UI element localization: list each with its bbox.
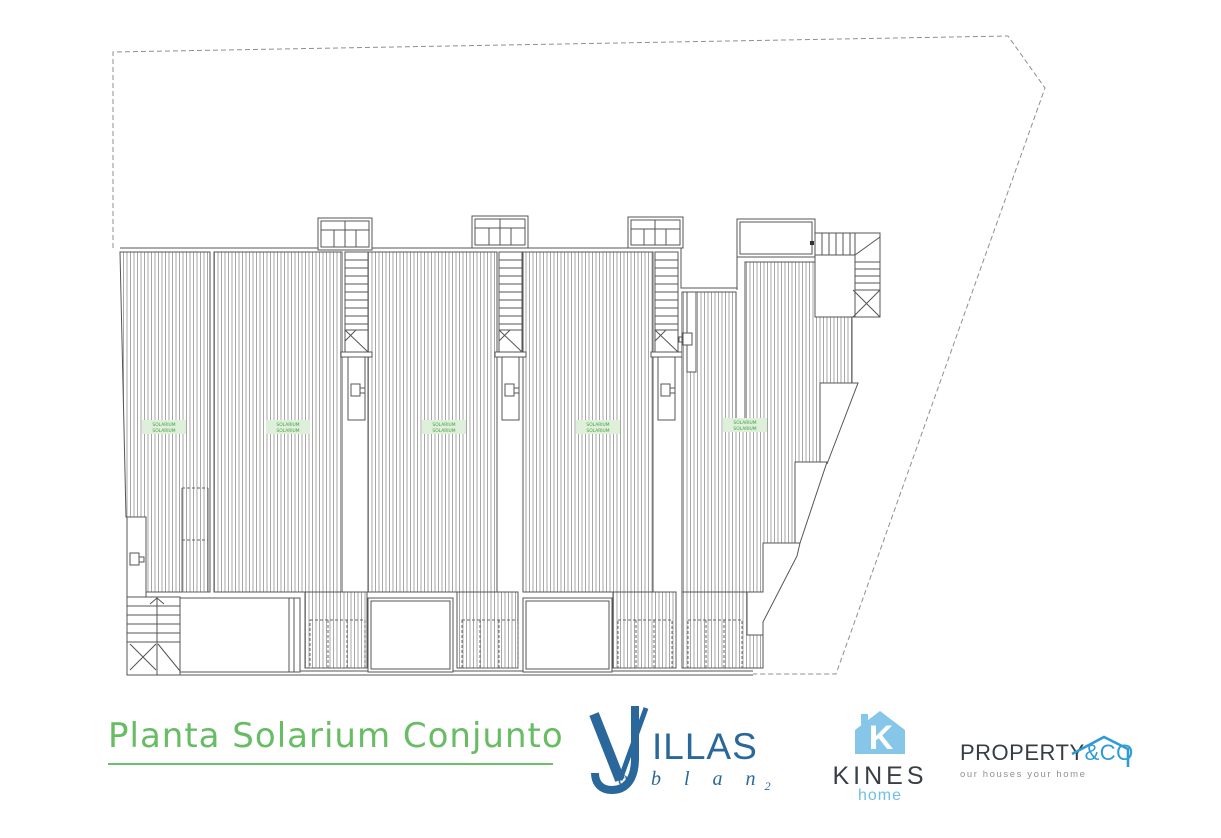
joblan-subscript: 2	[765, 779, 771, 793]
solarium-label-2: SOLARIUMSOLARIUM	[266, 420, 310, 434]
patio-3	[523, 598, 612, 672]
roof-icon	[1070, 726, 1136, 768]
property-co-tagline: our houses your home	[960, 769, 1145, 780]
door-icon	[683, 333, 692, 345]
svg-text:SOLARIUM: SOLARIUM	[276, 428, 299, 434]
floor-plan-drawing: SOLARIUMSOLARIUM SOLARIUMSOLARIUM SOLARI…	[0, 0, 1221, 705]
bulkhead-3	[628, 217, 683, 248]
svg-text:SOLARIUM: SOLARIUM	[276, 422, 299, 428]
stair-run-3	[651, 252, 682, 420]
solarium-label-1: SOLARIUMSOLARIUM	[142, 420, 186, 434]
unit-1-stair	[127, 597, 180, 675]
svg-text:SOLARIUM: SOLARIUM	[733, 426, 756, 432]
stair-run-2	[495, 252, 526, 420]
svg-text:SOLARIUM: SOLARIUM	[432, 428, 455, 434]
title-underline	[108, 763, 553, 765]
svg-text:SOLARIUM: SOLARIUM	[432, 422, 455, 428]
joblan-subname: o b l a n2	[618, 768, 771, 794]
drawing-sheet: SOLARIUMSOLARIUM SOLARIUMSOLARIUM SOLARI…	[0, 0, 1221, 838]
bulkhead-1	[318, 218, 372, 250]
bulkhead-2	[472, 216, 528, 248]
page-title: Planta Solarium Conjunto	[108, 716, 564, 756]
door-icon	[505, 384, 514, 396]
patios	[157, 598, 612, 672]
svg-text:SOLARIUM: SOLARIUM	[586, 422, 609, 428]
property-co-logo: PROPERTY&CO our houses your home	[960, 740, 1145, 780]
kines-house-icon: K	[849, 708, 911, 756]
unit-5-shaft	[687, 292, 696, 372]
left-access-strip	[127, 517, 146, 597]
joblan-name: ILLAS	[652, 726, 758, 768]
svg-text:SOLARIUM: SOLARIUM	[586, 428, 609, 434]
villas-joblan-logo: ILLAS o b l a n2	[588, 698, 763, 803]
l-stair	[815, 233, 880, 317]
stair-bulkheads	[318, 216, 683, 250]
stair-run-1	[341, 252, 372, 420]
solarium-label-3: SOLARIUMSOLARIUM	[422, 420, 466, 434]
solarium-label-4: SOLARIUMSOLARIUM	[576, 420, 620, 434]
door-icon	[130, 553, 139, 565]
svg-text:K: K	[869, 719, 894, 756]
patio-2	[368, 598, 453, 672]
terrace	[737, 219, 815, 257]
svg-text:SOLARIUM: SOLARIUM	[152, 428, 175, 434]
svg-text:SOLARIUM: SOLARIUM	[733, 420, 756, 426]
property-co-name: PROPERTY	[960, 740, 1085, 765]
door-icon	[661, 384, 670, 396]
solarium-label-5: SOLARIUMSOLARIUM	[723, 418, 767, 432]
svg-text:SOLARIUM: SOLARIUM	[152, 422, 175, 428]
kines-logo: K KINES home	[828, 708, 932, 805]
door-icon	[351, 384, 360, 396]
